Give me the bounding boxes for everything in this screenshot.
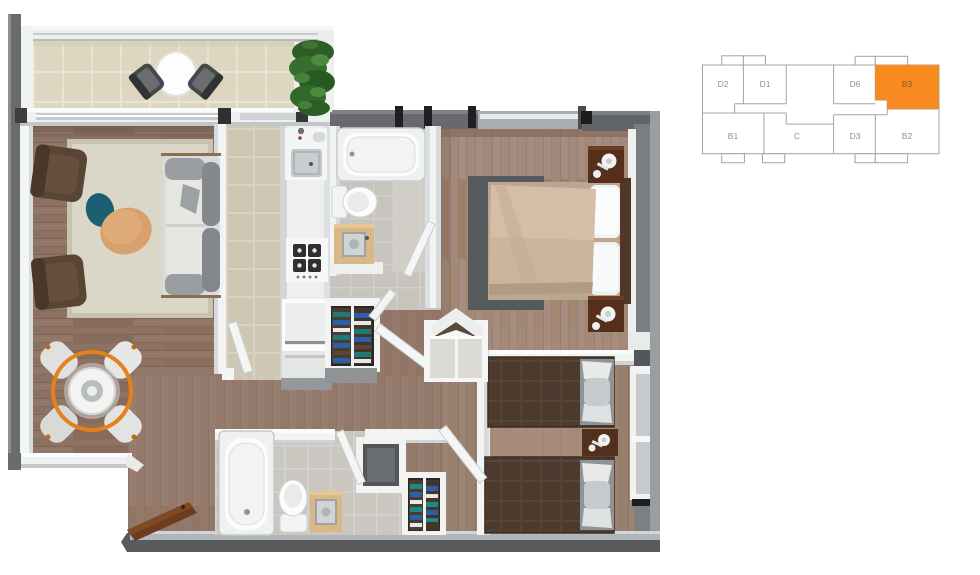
- svg-text:B1: B1: [728, 131, 739, 141]
- svg-text:D6: D6: [850, 79, 861, 89]
- svg-text:B2: B2: [902, 131, 913, 141]
- svg-text:D2: D2: [718, 79, 729, 89]
- svg-text:D1: D1: [760, 79, 771, 89]
- svg-text:C: C: [794, 131, 800, 141]
- svg-text:B3: B3: [902, 79, 913, 89]
- svg-text:D3: D3: [850, 131, 861, 141]
